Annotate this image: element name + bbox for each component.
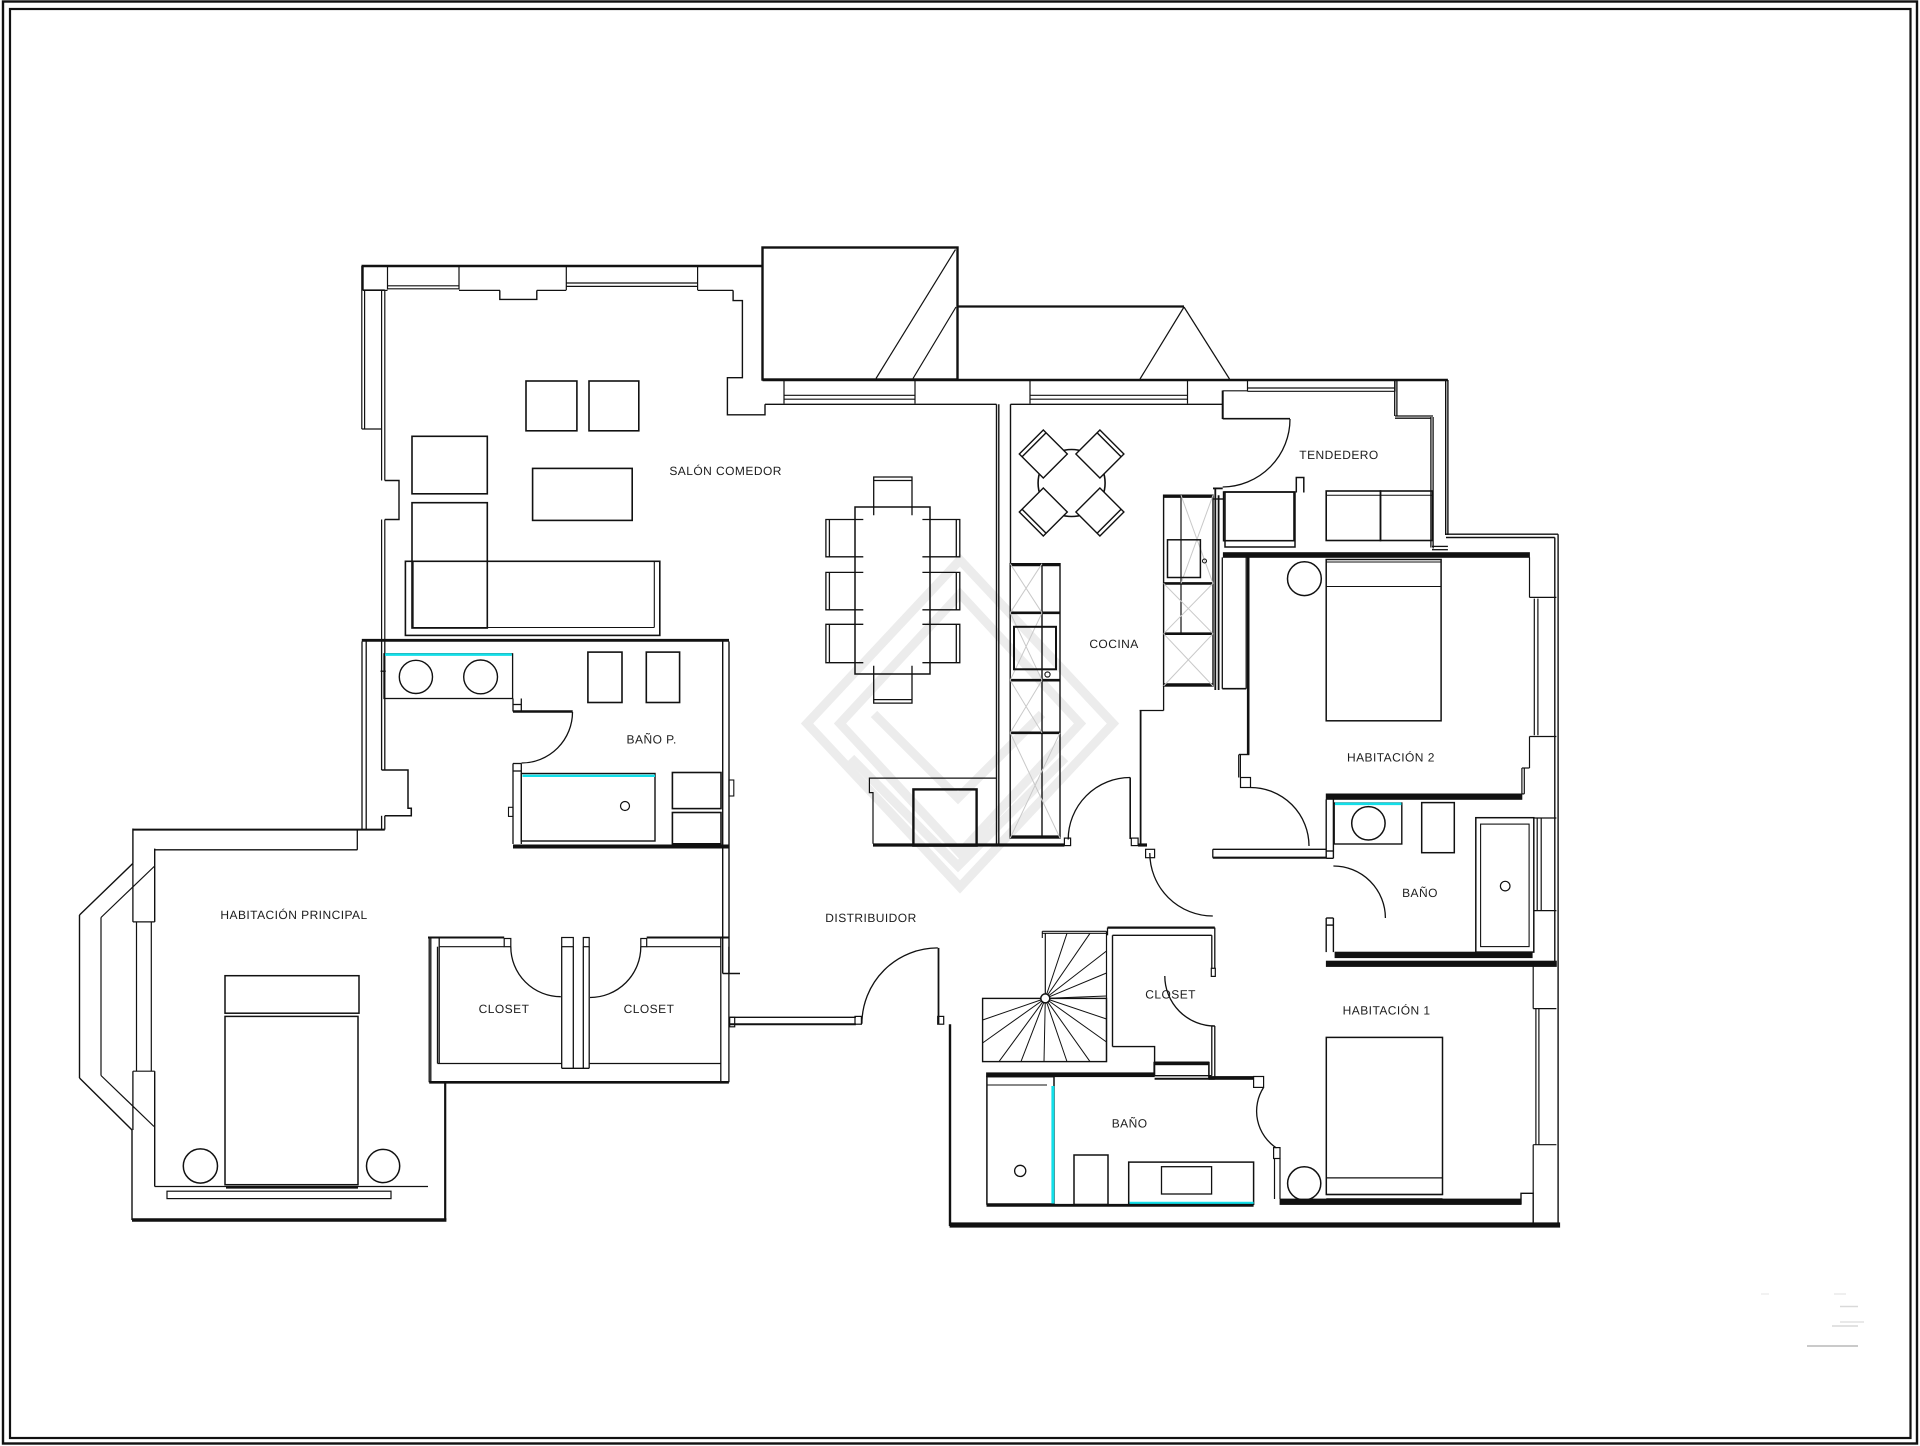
svg-text:CLOSET: CLOSET xyxy=(624,1002,675,1016)
svg-text:DISTRIBUIDOR: DISTRIBUIDOR xyxy=(825,911,916,925)
svg-text:BAÑO: BAÑO xyxy=(1402,886,1438,900)
svg-text:TENDEDERO: TENDEDERO xyxy=(1299,448,1378,462)
svg-text:BAÑO P.: BAÑO P. xyxy=(627,733,677,747)
svg-text:SALÓN COMEDOR: SALÓN COMEDOR xyxy=(669,464,782,478)
svg-text:HABITACIÓN PRINCIPAL: HABITACIÓN PRINCIPAL xyxy=(220,908,367,922)
svg-text:CLOSET: CLOSET xyxy=(1145,988,1196,1002)
svg-text:COCINA: COCINA xyxy=(1089,637,1138,651)
svg-text:HABITACIÓN 2: HABITACIÓN 2 xyxy=(1347,751,1435,765)
svg-text:CLOSET: CLOSET xyxy=(479,1002,530,1016)
svg-text:HABITACIÓN 1: HABITACIÓN 1 xyxy=(1343,1004,1431,1018)
svg-text:BAÑO: BAÑO xyxy=(1112,1117,1148,1131)
